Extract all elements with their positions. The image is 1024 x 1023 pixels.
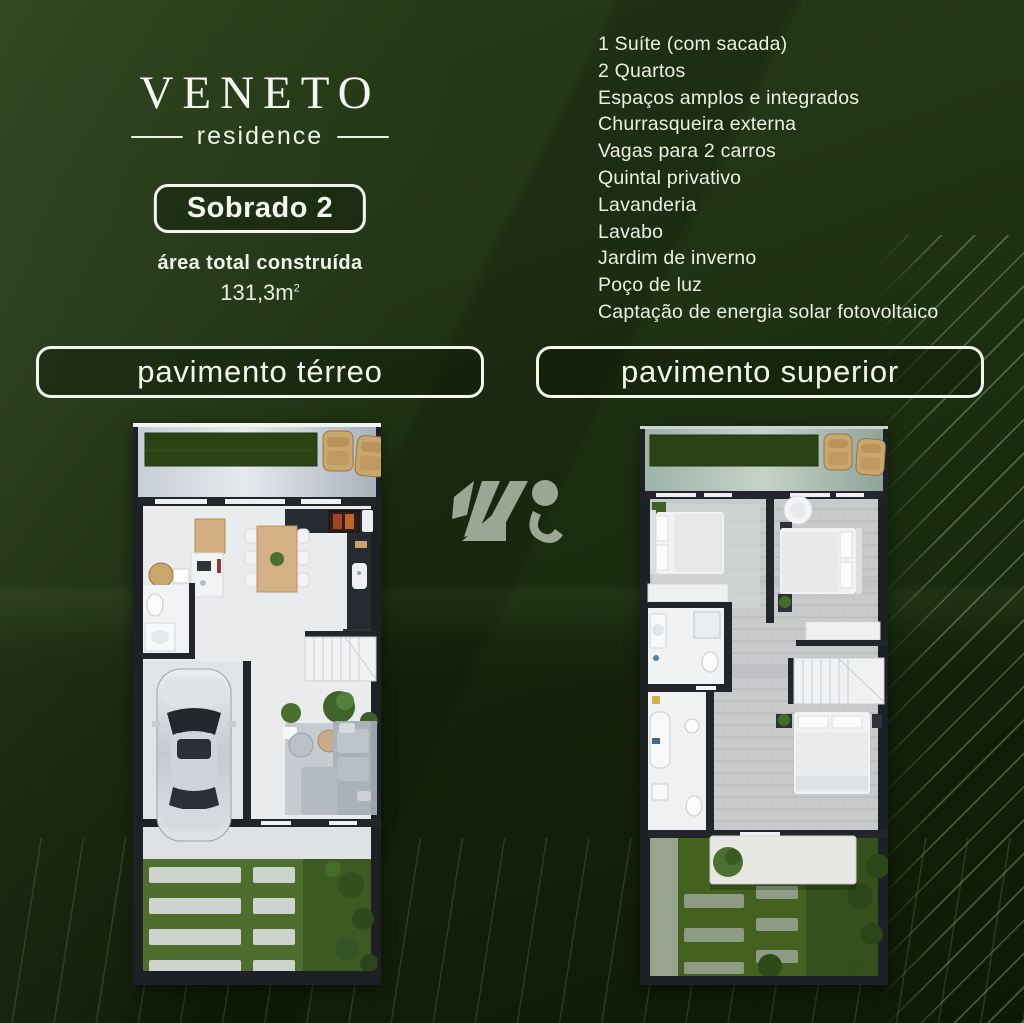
feature-item: Espaços amplos e integrados: [598, 85, 938, 112]
dash-left: [131, 136, 183, 138]
area-value: 131,3m2: [36, 280, 484, 306]
lounge-chair: [323, 431, 353, 471]
bbq-grill: [329, 510, 373, 532]
lounge-chair: [355, 435, 381, 477]
brand-name: VENETO: [36, 66, 484, 120]
feature-item: 1 Suíte (com sacada): [598, 31, 938, 58]
feature-item: 2 Quartos: [598, 58, 938, 85]
dining-table: [245, 526, 309, 592]
floorplan-upper: [640, 426, 888, 985]
plant: [779, 596, 791, 608]
backyard: [143, 859, 378, 974]
stairs: [305, 631, 376, 681]
area-label: área total construída: [36, 252, 484, 275]
feature-item: Quintal privativo: [598, 165, 938, 192]
feature-item: Lavabo: [598, 219, 938, 246]
front-wall: [645, 491, 883, 499]
feature-item: Churrasqueira externa: [598, 111, 938, 138]
feature-item: Poço de luz: [598, 272, 938, 299]
lounge-chair: [855, 438, 885, 476]
feature-item: Captação de energia solar fotovoltaico: [598, 299, 938, 326]
upper-floor-label: pavimento superior: [536, 346, 984, 398]
ground-floor-label: pavimento térreo: [36, 346, 484, 398]
closet: [648, 584, 728, 602]
floorplan-ground: [133, 423, 381, 985]
feature-list: 1 Suíte (com sacada)2 QuartosEspaços amp…: [598, 31, 938, 326]
dresser: [806, 622, 880, 640]
bathroom-2: [648, 692, 714, 832]
pouf: [289, 733, 313, 757]
plant: [281, 703, 301, 723]
bathroom-1: [648, 608, 732, 692]
stairs: [788, 658, 884, 704]
bedroom-wall: [766, 499, 774, 623]
flyer-canvas: VENETO residence Sobrado 2 área total co…: [0, 0, 1024, 1023]
builder-logo-watermark: [448, 471, 563, 547]
plant: [778, 714, 790, 726]
unit-badge: Sobrado 2: [154, 184, 366, 233]
feature-item: Jardim de inverno: [598, 245, 938, 272]
front-wall: [138, 497, 376, 506]
brand-subtitle: residence: [197, 122, 323, 151]
bathroom-lavabo: [141, 583, 195, 659]
feature-item: Vagas para 2 carros: [598, 138, 938, 165]
car-top-view: [152, 669, 236, 841]
brand-subtitle-row: residence: [36, 122, 484, 151]
lounge-chair: [824, 434, 852, 470]
rear-wall: [243, 819, 381, 827]
dash-right: [337, 136, 389, 138]
feature-item: Lavanderia: [598, 192, 938, 219]
backyard: [650, 836, 888, 978]
garage-wall: [243, 661, 251, 819]
